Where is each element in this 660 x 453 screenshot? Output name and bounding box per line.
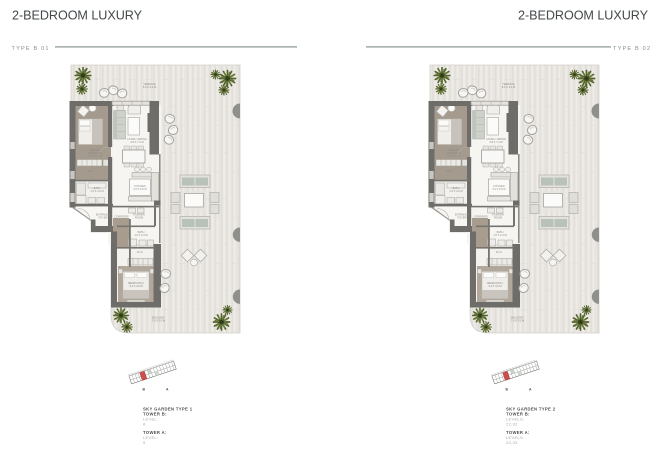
svg-text:FOYER: FOYER <box>99 216 108 220</box>
svg-text:CORRIDOR: CORRIDOR <box>114 215 128 219</box>
svg-text:TYPE B 02: TYPE B 02 <box>613 46 650 52</box>
svg-text:8.4 X 3.2 M: 8.4 X 3.2 M <box>143 85 156 89</box>
svg-text:23,33: 23,33 <box>506 440 518 445</box>
svg-text:3.4 X 4.0 M: 3.4 X 4.0 M <box>129 284 142 288</box>
svg-text:W.I.C: W.I.C <box>137 250 143 254</box>
svg-text:7.6 X 2.0 M: 7.6 X 2.0 M <box>152 319 165 323</box>
svg-text:1.5 X 3.0 M: 1.5 X 3.0 M <box>90 189 103 193</box>
svg-text:3.8 X 7.4 M: 3.8 X 7.4 M <box>130 140 143 144</box>
svg-text:22,32: 22,32 <box>506 422 518 427</box>
svg-text:3.6 X 4.2 M: 3.6 X 4.2 M <box>88 154 101 158</box>
svg-text:2-BEDROOM LUXURY: 2-BEDROOM LUXURY <box>518 9 649 23</box>
svg-text:1.6 X 2.4 M: 1.6 X 2.4 M <box>134 233 147 237</box>
svg-text:ROOM: ROOM <box>135 216 143 220</box>
svg-text:TYPE B 01: TYPE B 01 <box>12 46 49 52</box>
svg-text:W.I.C: W.I.C <box>87 169 93 173</box>
svg-text:2-BEDROOM LUXURY: 2-BEDROOM LUXURY <box>12 9 143 23</box>
svg-text:3.2 X 2.6 M: 3.2 X 2.6 M <box>133 187 146 191</box>
